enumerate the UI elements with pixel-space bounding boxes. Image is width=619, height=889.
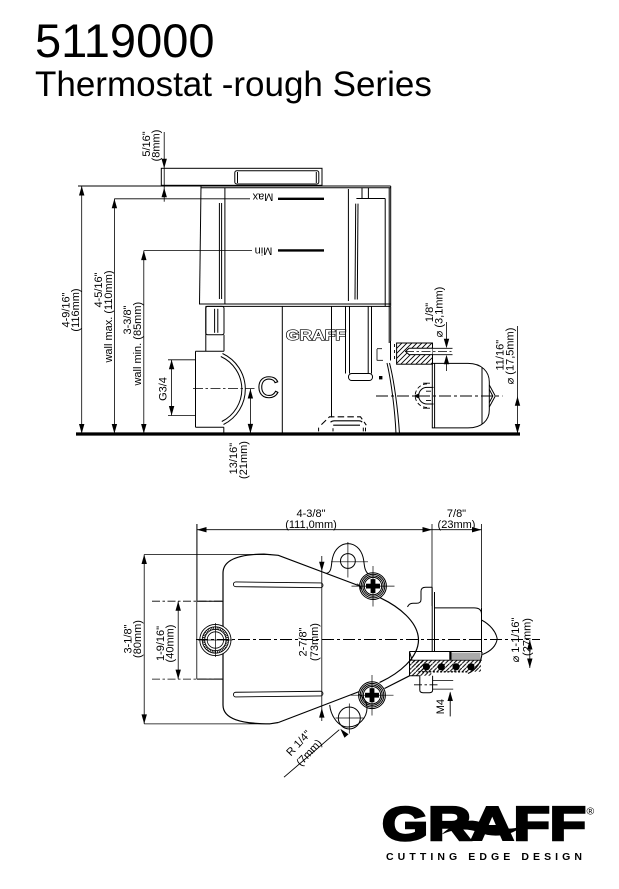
svg-text:5119000: 5119000 (35, 14, 215, 67)
svg-text:(8mm): (8mm) (151, 130, 163, 162)
svg-text:wall min. (85mm): wall min. (85mm) (132, 302, 144, 387)
svg-text:Max: Max (252, 191, 273, 203)
svg-text:(116mm): (116mm) (70, 288, 82, 331)
svg-text:(80mm): (80mm) (132, 620, 144, 658)
svg-text:M4: M4 (435, 699, 447, 714)
svg-text:wall max. (110mm): wall max. (110mm) (103, 270, 115, 363)
svg-text:2-7/8": 2-7/8" (298, 627, 310, 656)
svg-text:(21mm): (21mm) (238, 441, 250, 479)
svg-text:Thermostat -rough Series: Thermostat -rough Series (35, 65, 432, 104)
svg-text:Min: Min (255, 244, 273, 256)
svg-text:⌀ (3,1mm): ⌀ (3,1mm) (434, 287, 446, 338)
svg-text:CUTTING EDGE DESIGN: CUTTING EDGE DESIGN (386, 851, 582, 863)
svg-text:(111,0mm): (111,0mm) (285, 519, 337, 531)
svg-text:⌀ (17,5mm): ⌀ (17,5mm) (505, 328, 517, 385)
svg-text:(73mm): (73mm) (309, 623, 321, 661)
svg-text:(23mm): (23mm) (438, 519, 476, 531)
svg-text:GRAFF: GRAFF (286, 327, 346, 344)
svg-text:G3/4: G3/4 (158, 377, 170, 401)
svg-text:(27mm): (27mm) (521, 618, 533, 656)
svg-text:®: ® (587, 806, 595, 818)
svg-text:C: C (257, 372, 279, 405)
svg-text:(40mm): (40mm) (164, 625, 176, 663)
svg-text:⌀ 1-1/16": ⌀ 1-1/16" (510, 618, 522, 663)
